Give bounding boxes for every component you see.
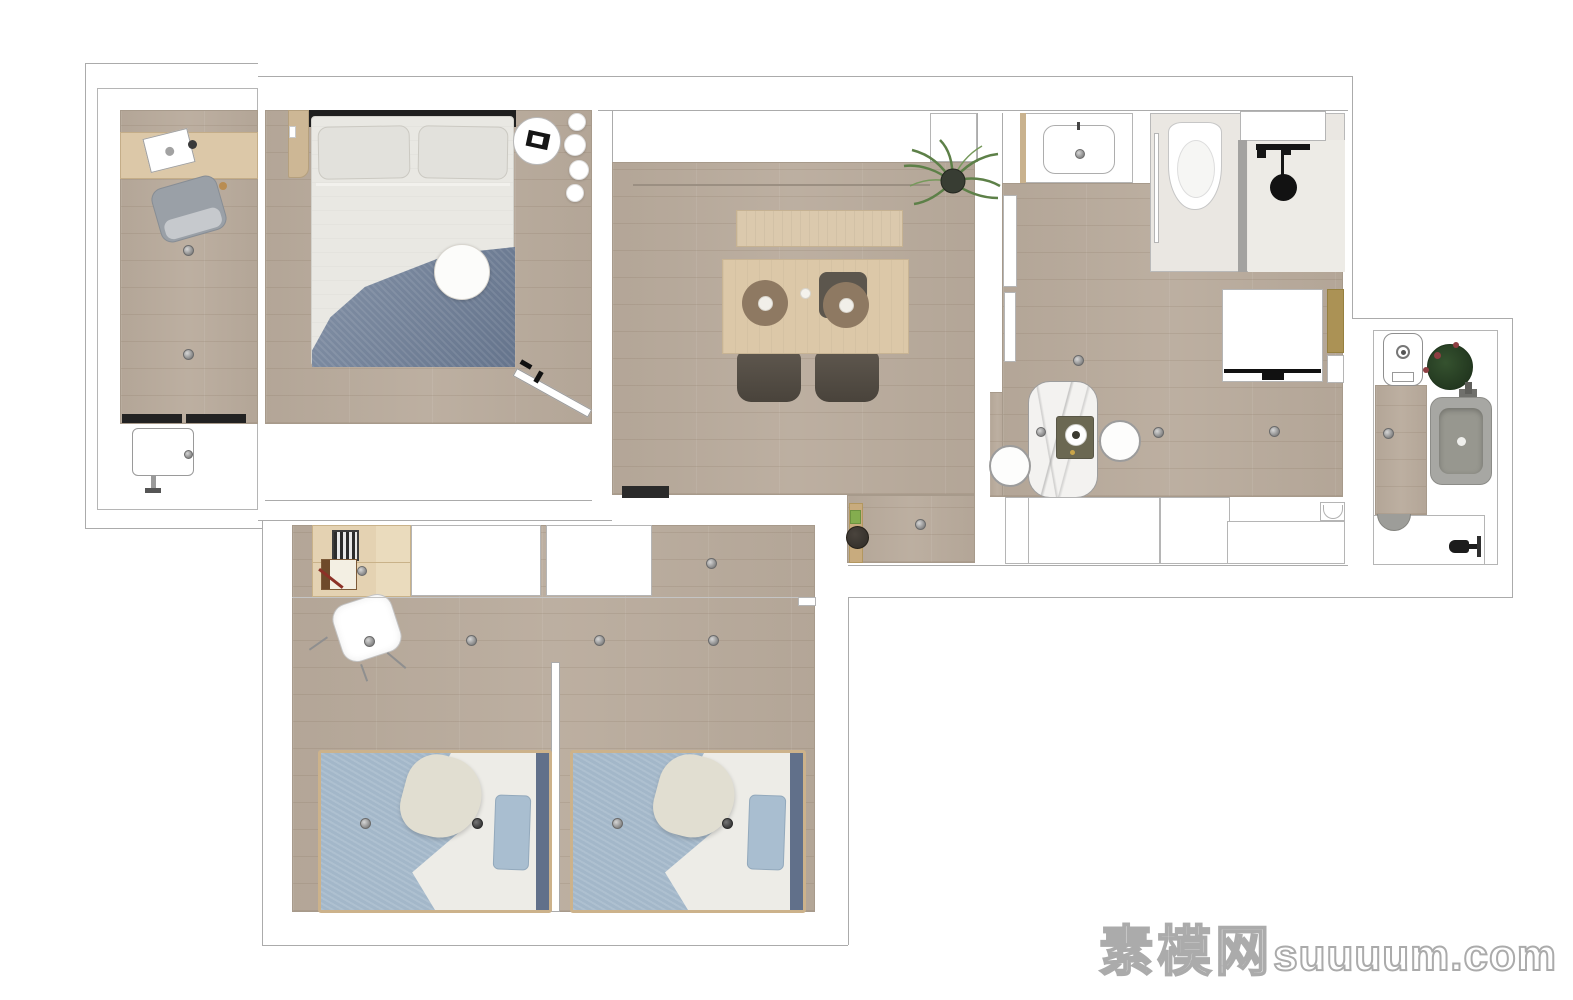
wall-line — [1352, 318, 1512, 319]
kids-desk-right — [376, 526, 410, 596]
wall-ledge-line — [633, 184, 930, 186]
round-cushion — [434, 244, 490, 300]
berry — [1423, 367, 1429, 373]
cooker-center — [1072, 431, 1080, 439]
dining-chair — [737, 351, 801, 402]
dining-chair — [815, 351, 879, 402]
wall-line — [848, 597, 849, 945]
bath-niche — [1240, 111, 1326, 141]
single-bed — [318, 750, 552, 913]
toilet-seat — [1177, 140, 1215, 198]
single-bed — [570, 750, 806, 913]
wall-line — [1512, 318, 1513, 598]
round-stool — [1099, 420, 1141, 462]
glass-partition — [1154, 133, 1159, 243]
heater-dial-dot — [1401, 350, 1406, 355]
hand-mirror-icon — [526, 130, 551, 150]
faucet-handle — [145, 488, 161, 493]
wall-line — [262, 520, 263, 945]
shower-hose — [1281, 150, 1284, 176]
cooktop-left — [122, 414, 182, 423]
bed-headboard — [536, 753, 549, 910]
wall-line — [1352, 76, 1353, 318]
curtain — [564, 134, 586, 156]
floor-knob — [594, 635, 605, 646]
shower-valve — [1257, 150, 1266, 158]
sink-faucet-head — [1465, 382, 1472, 394]
curtain — [568, 113, 586, 131]
vanity-mirror — [513, 117, 561, 165]
wall-line — [85, 63, 258, 64]
shower-divider — [1238, 140, 1247, 272]
bed-knob — [360, 818, 371, 829]
wall-line — [85, 528, 262, 529]
potted-palm-icon — [898, 138, 1004, 224]
nightstand-pull — [289, 126, 296, 138]
wall-line — [598, 110, 1348, 111]
small-bowl — [800, 288, 811, 299]
pillow — [318, 125, 411, 180]
floor-plan: 素模网suuuum.com — [0, 0, 1573, 1000]
wall-line — [262, 945, 848, 946]
blue-pillow — [746, 795, 785, 872]
table-knob — [1036, 427, 1046, 437]
cooktop-right — [186, 414, 246, 423]
base-counter — [1160, 497, 1230, 564]
floor-knob — [915, 519, 926, 530]
heater-slot — [1392, 372, 1414, 382]
counter-divider — [1028, 497, 1029, 564]
basin-faucet — [1077, 122, 1080, 130]
curtain — [566, 184, 584, 202]
sink-knob — [184, 450, 193, 459]
mirror-glass — [531, 135, 543, 145]
nightstand — [288, 110, 309, 178]
basin-drain — [1075, 149, 1085, 159]
blue-blanket — [312, 229, 515, 367]
curtain — [569, 160, 589, 180]
wall-line — [265, 500, 592, 501]
desk-rack — [332, 530, 359, 561]
floor-knob — [1073, 355, 1084, 366]
toilet — [1168, 122, 1222, 210]
floor-knob — [183, 349, 194, 360]
floor-knob — [708, 635, 719, 646]
black-tap-bar — [1477, 536, 1481, 557]
floor-knob — [466, 635, 477, 646]
kids-door-opening — [816, 558, 847, 598]
bowl — [846, 526, 869, 549]
plate — [758, 296, 773, 311]
dining-table — [722, 259, 909, 354]
desk-accessory — [188, 140, 197, 149]
shower-zone — [1248, 140, 1345, 272]
water-heater — [1383, 333, 1423, 386]
sink-drain — [1457, 437, 1466, 446]
induction-cooker — [1056, 416, 1094, 459]
duvet-fold — [316, 183, 510, 186]
floor-knob — [364, 636, 375, 647]
shower-valve — [1283, 149, 1291, 155]
cabinet-front-line — [292, 597, 815, 598]
wall-line — [85, 63, 86, 528]
plate — [839, 298, 854, 313]
wall-line — [258, 76, 1352, 77]
floor-knob — [1153, 427, 1164, 438]
wall-line — [612, 110, 613, 162]
blue-pillow — [493, 795, 532, 872]
kids-door-leaf — [798, 597, 816, 606]
tall-cabinet-base — [1327, 355, 1344, 383]
shower-head-icon — [1270, 174, 1297, 201]
floor-knob — [1383, 428, 1394, 439]
bed-headboard — [790, 753, 803, 910]
wall-line — [848, 565, 1348, 566]
service-shaft — [1003, 195, 1017, 287]
laptop-logo-icon — [164, 146, 175, 157]
watermark: 素模网suuuum.com — [1099, 907, 1557, 986]
green-cup — [850, 510, 861, 524]
bed-knob — [472, 818, 483, 829]
bed-partition — [551, 662, 560, 912]
sideboard — [736, 210, 903, 247]
floor-knob — [183, 245, 194, 256]
watermark-site-name: 素模网 — [1099, 907, 1273, 986]
black-tap — [1449, 540, 1469, 553]
floor-knob — [1269, 426, 1280, 437]
wall-line — [258, 520, 612, 521]
bed-knob — [722, 818, 733, 829]
wood-mat — [1375, 385, 1427, 515]
base-counter — [1227, 521, 1345, 564]
laundry-sink — [1430, 397, 1492, 485]
wardrobe — [546, 525, 652, 596]
pillow — [418, 125, 509, 180]
tv-stand — [1262, 372, 1284, 380]
wall-line — [848, 597, 1512, 598]
berry — [1434, 352, 1441, 359]
bed-knob — [612, 818, 623, 829]
desk-knob — [357, 566, 367, 576]
round-stool — [989, 445, 1031, 487]
counter-side — [1020, 113, 1026, 183]
cooker-knob — [1070, 450, 1075, 455]
wardrobe — [411, 525, 541, 596]
berry — [1453, 342, 1459, 348]
service-shaft — [1004, 292, 1016, 362]
tall-cabinet — [1327, 289, 1344, 353]
chair-knob — [219, 182, 227, 190]
floor-knob — [706, 558, 717, 569]
watermark-domain: suuuum.com — [1273, 931, 1557, 981]
doormat — [622, 486, 669, 498]
double-bed — [311, 116, 514, 366]
